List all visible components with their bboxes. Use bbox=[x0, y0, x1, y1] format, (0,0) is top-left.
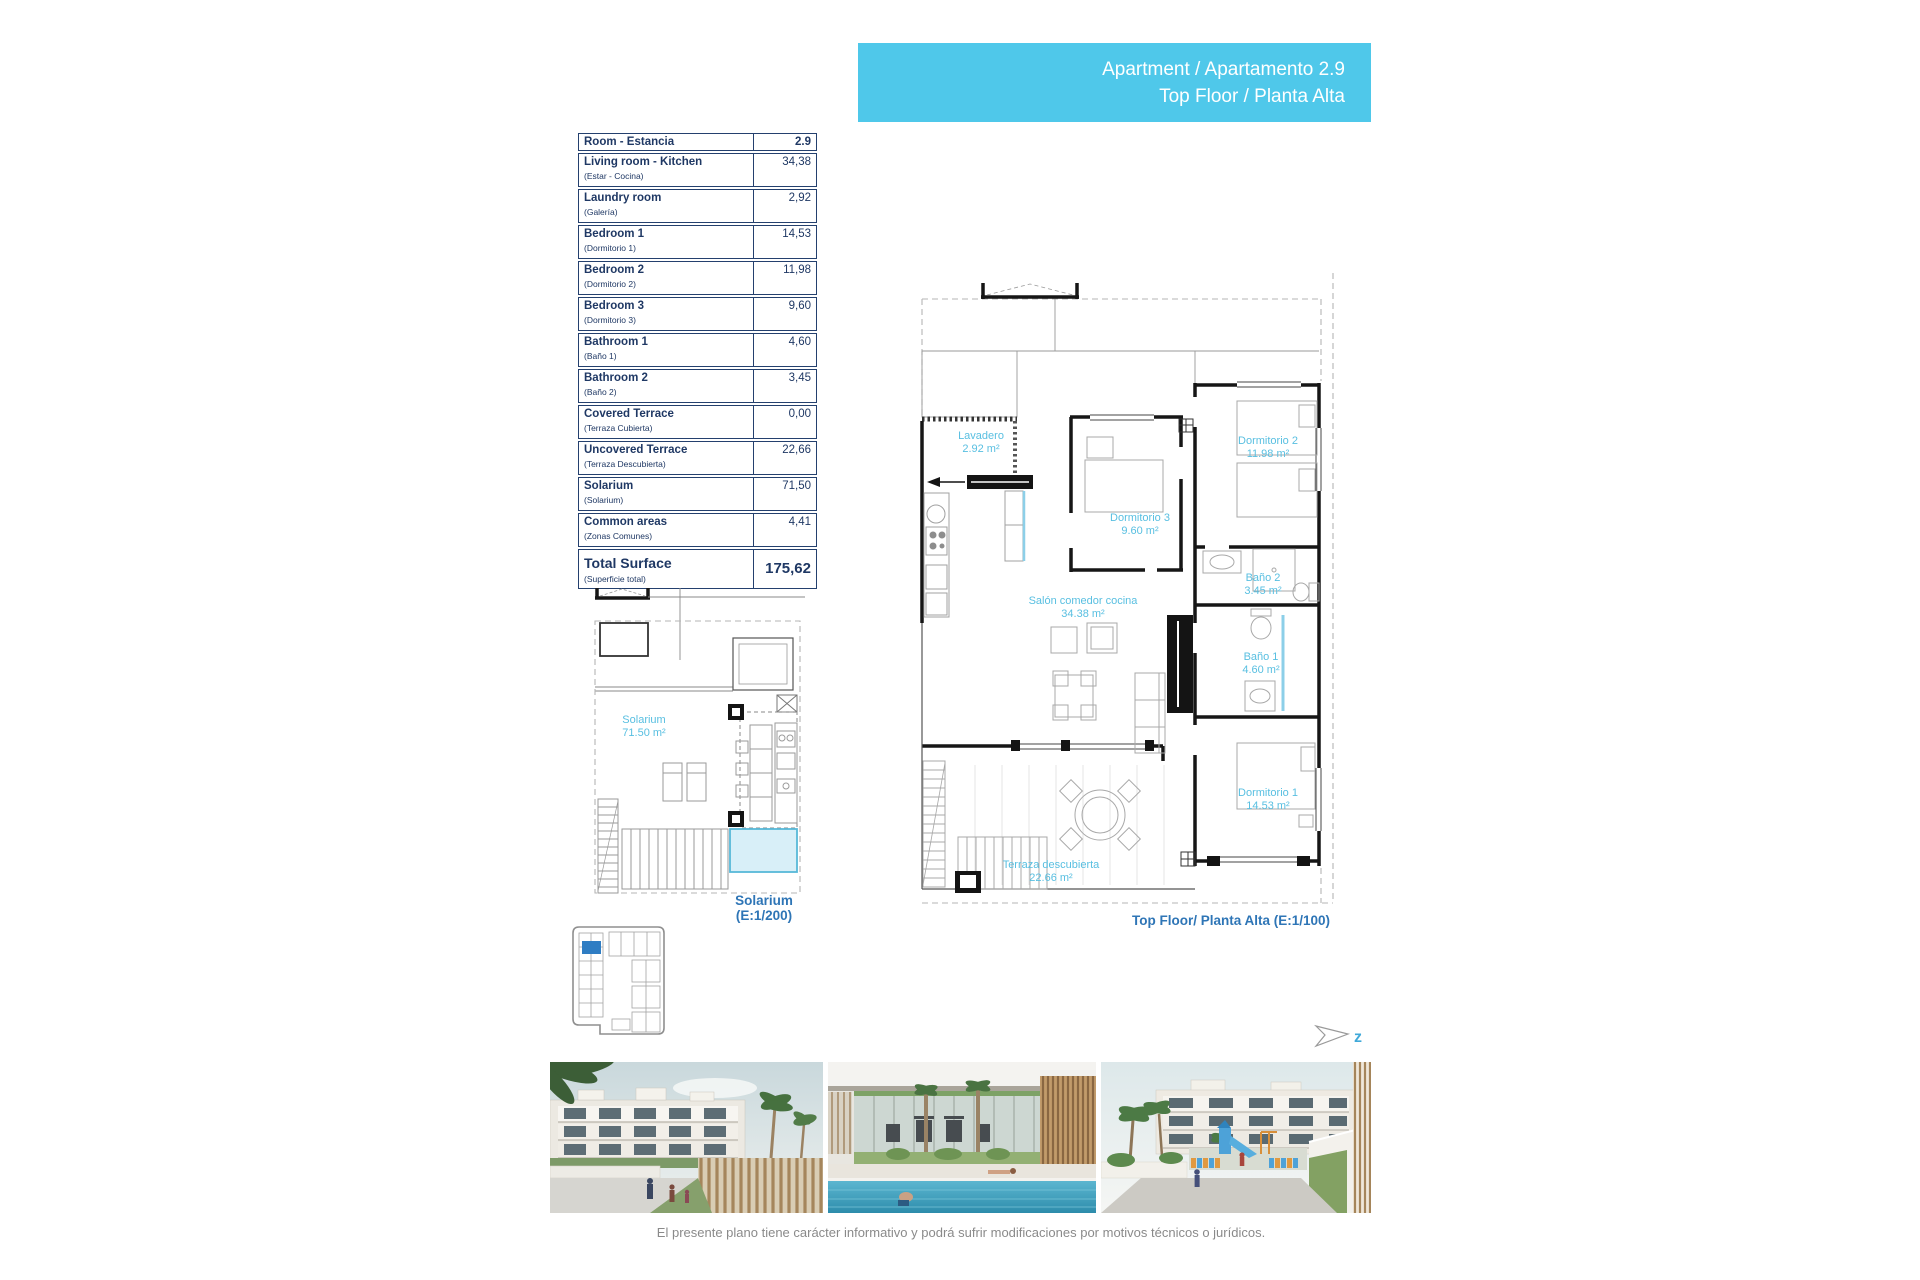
table-row: Solarium(Solarium) 71,50 bbox=[578, 477, 817, 511]
sol-pergola-inner bbox=[739, 644, 787, 684]
room-area-dormitorio1: 14.53 m² bbox=[1246, 800, 1290, 812]
photo-playground bbox=[1101, 1062, 1371, 1213]
photo-playground-art bbox=[1101, 1062, 1371, 1213]
header-room-cell: Room - Estancia bbox=[578, 133, 754, 151]
terrace-borders bbox=[922, 623, 1195, 889]
apartment-title: Apartment / Apartamento 2.9 bbox=[858, 56, 1345, 83]
room-name-cell: Common areas(Zonas Comunes) bbox=[578, 513, 754, 547]
disclaimer-text: El presente plano tiene carácter informa… bbox=[550, 1225, 1372, 1240]
room-area-terraza: 22.66 m² bbox=[1029, 872, 1073, 884]
room-area-dormitorio2: 11.98 m² bbox=[1247, 448, 1290, 460]
table-row: Bedroom 1(Dormitorio 1) 14,53 bbox=[578, 225, 817, 259]
main-floor-plan: Lavadero 2.92 m² Dormitorio 3 9.60 m² Do… bbox=[905, 225, 1345, 935]
table-row: Common areas(Zonas Comunes) 4,41 bbox=[578, 513, 817, 547]
room-label-terraza: Terraza descubierta bbox=[1003, 859, 1100, 871]
room-name-cell: Bathroom 2(Baño 2) bbox=[578, 369, 754, 403]
room-label-dormitorio3: Dormitorio 3 bbox=[1110, 512, 1170, 524]
room-label-bano1: Baño 1 bbox=[1244, 651, 1279, 663]
keyplan-highlighted-unit bbox=[582, 941, 601, 954]
sol-chimney-chevron bbox=[600, 589, 645, 596]
room-value-cell: 14,53 bbox=[754, 225, 817, 259]
sol-chimney bbox=[595, 588, 650, 599]
room-label-salon: Salón comedor cocina bbox=[1029, 595, 1139, 607]
chimney bbox=[981, 283, 1079, 299]
photo-apartment-exterior-art bbox=[550, 1062, 823, 1213]
room-value-cell: 34,38 bbox=[754, 153, 817, 187]
north-arrow-icon bbox=[1316, 1026, 1348, 1046]
sol-pool bbox=[730, 829, 797, 872]
sol-thin-lines bbox=[595, 588, 805, 691]
furniture bbox=[923, 401, 1319, 889]
room-name-cell: Bedroom 3(Dormitorio 3) bbox=[578, 297, 754, 331]
kitchen-fixtures bbox=[924, 491, 1023, 617]
room-value-cell: 4,41 bbox=[754, 513, 817, 547]
sol-stairs bbox=[598, 799, 728, 893]
room-value-cell: 3,45 bbox=[754, 369, 817, 403]
solarium-caption-line1: Solarium bbox=[699, 893, 829, 908]
solarium-label: Solarium bbox=[622, 714, 665, 726]
solarium-area: 71.50 m² bbox=[622, 727, 666, 739]
north-indicator: z bbox=[1312, 1016, 1372, 1056]
sol-upper-left-room bbox=[600, 623, 648, 656]
room-value-cell: 22,66 bbox=[754, 441, 817, 475]
key-plan bbox=[568, 922, 670, 1042]
table-row: Bedroom 2(Dormitorio 2) 11,98 bbox=[578, 261, 817, 295]
upper-covered-block bbox=[922, 351, 1017, 417]
sol-loungers bbox=[663, 763, 706, 801]
solarium-caption-line2: (E:1/200) bbox=[699, 908, 829, 923]
room-area-salon: 34.38 m² bbox=[1061, 608, 1105, 620]
room-name-cell: Living room - Kitchen(Estar - Cocina) bbox=[578, 153, 754, 187]
roof-lines bbox=[922, 299, 1319, 383]
room-value-cell: 11,98 bbox=[754, 261, 817, 295]
table-row: Bathroom 1(Baño 1) 4,60 bbox=[578, 333, 817, 367]
room-area-dormitorio3: 9.60 m² bbox=[1121, 525, 1159, 537]
room-label-dormitorio1: Dormitorio 1 bbox=[1238, 787, 1298, 799]
table-row: Laundry room(Galería) 2,92 bbox=[578, 189, 817, 223]
table-header-row: Room - Estancia 2.9 bbox=[578, 133, 817, 151]
table-row: Bedroom 3(Dormitorio 3) 9,60 bbox=[578, 297, 817, 331]
sol-pergola bbox=[733, 638, 793, 690]
room-name-cell: Bathroom 1(Baño 1) bbox=[578, 333, 754, 367]
room-value-cell: 2,92 bbox=[754, 189, 817, 223]
room-area-bano2: 3.45 m² bbox=[1244, 585, 1282, 597]
header-unit-cell: 2.9 bbox=[754, 133, 817, 151]
sol-outdoor-kitchen bbox=[736, 723, 797, 823]
table-row: Covered Terrace(Terraza Cubierta) 0,00 bbox=[578, 405, 817, 439]
corridor-wall-mass bbox=[1167, 615, 1193, 713]
plan-sheet-page: Apartment / Apartamento 2.9 Top Floor / … bbox=[0, 0, 1920, 1280]
room-label-lavadero: Lavadero bbox=[958, 430, 1004, 442]
photo-pool-gym bbox=[828, 1062, 1096, 1213]
room-name-cell: Uncovered Terrace(Terraza Descubierta) bbox=[578, 441, 754, 475]
room-name-cell: Bedroom 2(Dormitorio 2) bbox=[578, 261, 754, 295]
north-letter: z bbox=[1354, 1029, 1362, 1046]
room-name-cell: Covered Terrace(Terraza Cubierta) bbox=[578, 405, 754, 439]
sol-skylight bbox=[777, 695, 797, 712]
entry-arrow-head bbox=[927, 477, 940, 487]
floor-title: Top Floor / Planta Alta bbox=[858, 83, 1345, 110]
room-label-bano2: Baño 2 bbox=[1246, 572, 1281, 584]
room-value-cell: 71,50 bbox=[754, 477, 817, 511]
stair-landing-core bbox=[960, 875, 976, 888]
table-row: Uncovered Terrace(Terraza Descubierta) 2… bbox=[578, 441, 817, 475]
room-value-cell: 0,00 bbox=[754, 405, 817, 439]
chimney-chevron bbox=[987, 284, 1073, 295]
room-area-bano1: 4.60 m² bbox=[1242, 664, 1280, 676]
main-plan-caption: Top Floor/ Planta Alta (E:1/100) bbox=[1000, 913, 1330, 928]
room-name-cell: Solarium(Solarium) bbox=[578, 477, 754, 511]
room-name-cell: Bedroom 1(Dormitorio 1) bbox=[578, 225, 754, 259]
table-row: Living room - Kitchen(Estar - Cocina) 34… bbox=[578, 153, 817, 187]
title-banner: Apartment / Apartamento 2.9 Top Floor / … bbox=[858, 43, 1371, 122]
solarium-caption: Solarium (E:1/200) bbox=[699, 893, 829, 923]
room-name-cell: Laundry room(Galería) bbox=[578, 189, 754, 223]
photo-apartment-exterior bbox=[550, 1062, 823, 1213]
room-area-table: Room - Estancia 2.9 Living room - Kitche… bbox=[578, 131, 817, 591]
room-label-dormitorio2: Dormitorio 2 bbox=[1238, 435, 1298, 447]
room-area-lavadero: 2.92 m² bbox=[962, 443, 1000, 455]
table-row: Bathroom 2(Baño 2) 3,45 bbox=[578, 369, 817, 403]
room-value-cell: 9,60 bbox=[754, 297, 817, 331]
photo-pool-gym-art bbox=[828, 1062, 1096, 1213]
sol-kitchen-dashed bbox=[740, 712, 797, 828]
room-value-cell: 4,60 bbox=[754, 333, 817, 367]
solarium-plan: Solarium 71.50 m² bbox=[590, 583, 805, 905]
